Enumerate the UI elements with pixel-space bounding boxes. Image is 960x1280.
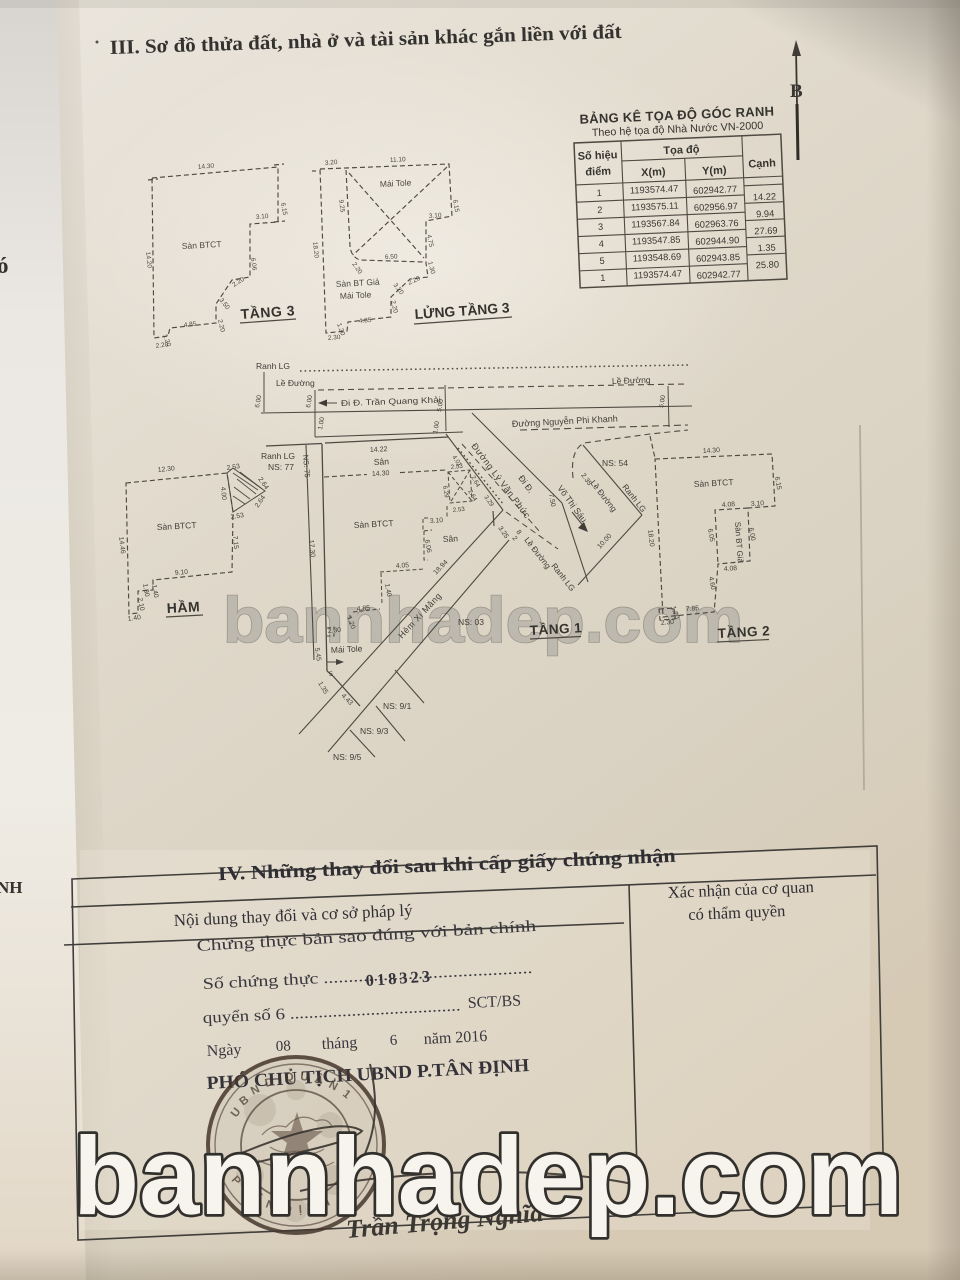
svg-text:2: 2 xyxy=(597,205,603,215)
svg-text:1193548.69: 1193548.69 xyxy=(633,252,682,264)
svg-text:2.30: 2.30 xyxy=(328,627,342,635)
svg-text:3: 3 xyxy=(598,222,604,232)
svg-text:14.30: 14.30 xyxy=(198,163,215,171)
svg-text:4.85: 4.85 xyxy=(357,605,371,613)
svg-text:4.08: 4.08 xyxy=(722,501,736,509)
svg-text:Sân: Sân xyxy=(443,533,459,544)
svg-text:14.30: 14.30 xyxy=(703,447,721,455)
svg-text:Sàn BTCT: Sàn BTCT xyxy=(157,520,197,532)
svg-text:Mái Tole: Mái Tole xyxy=(331,643,363,655)
svg-text:Sàn BTCT: Sàn BTCT xyxy=(694,477,734,489)
svg-text:HẦM: HẦM xyxy=(166,598,200,616)
svg-text:1: 1 xyxy=(596,188,602,198)
svg-text:5: 5 xyxy=(329,671,333,678)
svg-text:3.20: 3.20 xyxy=(325,159,339,167)
svg-text:7.85: 7.85 xyxy=(686,605,700,613)
svg-text:NS: 9/1: NS: 9/1 xyxy=(383,701,412,711)
svg-text:Ranh LG: Ranh LG xyxy=(256,361,290,371)
svg-text:1193575.11: 1193575.11 xyxy=(631,201,679,213)
svg-text:3.10: 3.10 xyxy=(430,517,444,525)
svg-text:1: 1 xyxy=(600,273,606,283)
svg-text:602942.77: 602942.77 xyxy=(693,184,737,196)
svg-text:điểm: điểm xyxy=(585,165,611,178)
svg-text:602944.90: 602944.90 xyxy=(695,235,739,247)
svg-text:NS: 77: NS: 77 xyxy=(268,462,294,472)
svg-text:2.30: 2.30 xyxy=(661,619,675,627)
svg-text:tháng: tháng xyxy=(321,1034,357,1053)
svg-text:14.22: 14.22 xyxy=(370,446,388,454)
svg-text:1193574.47: 1193574.47 xyxy=(633,269,682,281)
svg-text:14.30: 14.30 xyxy=(372,470,390,478)
svg-text:Mái Tole: Mái Tole xyxy=(340,289,372,301)
svg-text:2.53: 2.53 xyxy=(452,506,465,514)
svg-text:TẦNG 2: TẦNG 2 xyxy=(717,623,770,641)
svg-text:9.94: 9.94 xyxy=(756,209,775,220)
svg-text:Sàn BTCT: Sàn BTCT xyxy=(354,518,394,530)
svg-text:602956.97: 602956.97 xyxy=(694,201,738,213)
svg-text:602943.85: 602943.85 xyxy=(696,252,740,264)
svg-text:NH: NH xyxy=(0,878,23,897)
svg-text:5: 5 xyxy=(599,256,605,266)
svg-text:1193547.85: 1193547.85 xyxy=(632,235,681,247)
svg-text:4.85: 4.85 xyxy=(359,317,373,325)
svg-text:4: 4 xyxy=(599,239,605,249)
svg-text:2.30: 2.30 xyxy=(328,334,342,342)
svg-text:Lề Đường: Lề Đường xyxy=(276,378,315,388)
svg-text:3.10: 3.10 xyxy=(256,213,270,221)
svg-text:NS: 54: NS: 54 xyxy=(602,458,628,468)
svg-text:NS: 03: NS: 03 xyxy=(458,617,484,627)
svg-text:B: B xyxy=(790,81,803,102)
svg-text:3.10: 3.10 xyxy=(751,500,765,508)
svg-text:Lề Đường: Lề Đường xyxy=(612,375,651,386)
svg-text:Sàn BTCT: Sàn BTCT xyxy=(182,239,222,251)
svg-text:SCT/BS: SCT/BS xyxy=(467,992,521,1012)
svg-text:11.10: 11.10 xyxy=(390,156,407,164)
svg-text:1.35: 1.35 xyxy=(757,242,776,253)
svg-text:14.22: 14.22 xyxy=(753,191,777,202)
svg-text:NS: 9/5: NS: 9/5 xyxy=(333,752,362,762)
svg-text:Số hiệu: Số hiệu xyxy=(577,149,617,163)
svg-text:9.10: 9.10 xyxy=(175,569,189,577)
svg-text:Sân: Sân xyxy=(374,456,390,467)
svg-text:Ranh LG: Ranh LG xyxy=(261,451,295,461)
svg-text:6.50: 6.50 xyxy=(385,253,398,261)
svg-text:4.00: 4.00 xyxy=(219,487,227,501)
svg-text:Cạnh: Cạnh xyxy=(748,157,776,170)
svg-text:Ngày: Ngày xyxy=(206,1041,241,1060)
svg-text:27.69: 27.69 xyxy=(754,225,778,236)
svg-text:NS: 9/3: NS: 9/3 xyxy=(360,726,389,736)
svg-text:Y(m): Y(m) xyxy=(702,164,727,177)
svg-text:ó: ó xyxy=(0,253,9,278)
svg-text:4.85: 4.85 xyxy=(183,321,197,329)
svg-text:602963.76: 602963.76 xyxy=(694,218,738,230)
svg-text:X(m): X(m) xyxy=(641,166,666,179)
svg-text:6: 6 xyxy=(389,1033,398,1049)
svg-text:bannhadep.com: bannhadep.com xyxy=(73,1115,903,1238)
svg-text:4.08: 4.08 xyxy=(724,565,738,573)
svg-text:602942.77: 602942.77 xyxy=(697,269,741,281)
svg-text:có thẩm quyền: có thẩm quyền xyxy=(688,901,786,924)
svg-text:Tọa độ: Tọa độ xyxy=(663,144,700,158)
svg-text:3.10: 3.10 xyxy=(429,212,442,220)
svg-text:25.80: 25.80 xyxy=(756,259,780,270)
svg-text:Mái Tole: Mái Tole xyxy=(380,177,412,189)
svg-text:7.15: 7.15 xyxy=(231,536,239,550)
svg-text:1193574.47: 1193574.47 xyxy=(630,184,679,196)
svg-text:TẦNG 1: TẦNG 1 xyxy=(529,620,582,638)
svg-text:1193567.84: 1193567.84 xyxy=(631,218,680,230)
svg-text:08: 08 xyxy=(275,1038,291,1055)
svg-text:năm 2016: năm 2016 xyxy=(423,1028,487,1048)
svg-text:4.05: 4.05 xyxy=(396,562,410,570)
